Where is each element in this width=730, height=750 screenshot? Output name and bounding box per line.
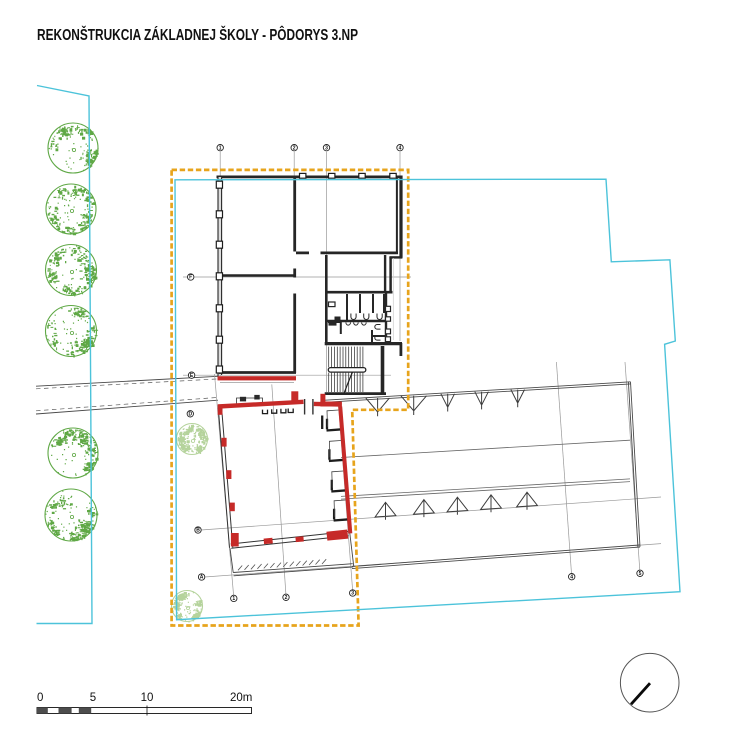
svg-text:1: 1 [219,145,222,151]
svg-text:0: 0 [37,692,43,704]
svg-text:F: F [189,275,192,281]
svg-text:D: D [188,411,192,417]
svg-text:2: 2 [293,145,296,151]
svg-text:5: 5 [90,692,96,704]
svg-text:5: 5 [639,571,642,577]
svg-text:20m: 20m [230,692,252,704]
svg-text:1: 1 [232,596,235,602]
svg-text:2: 2 [285,595,288,601]
svg-text:4: 4 [399,145,402,151]
svg-text:B: B [196,528,200,534]
svg-text:3: 3 [325,145,328,151]
svg-text:A: A [200,575,204,581]
svg-text:3: 3 [351,591,354,597]
svg-text:10: 10 [141,692,154,704]
svg-text:4: 4 [570,574,573,580]
svg-text:REKONŠTRUKCIA ZÁKLADNEJ ŠKOLY: REKONŠTRUKCIA ZÁKLADNEJ ŠKOLY - PÔDORYS … [37,25,358,44]
